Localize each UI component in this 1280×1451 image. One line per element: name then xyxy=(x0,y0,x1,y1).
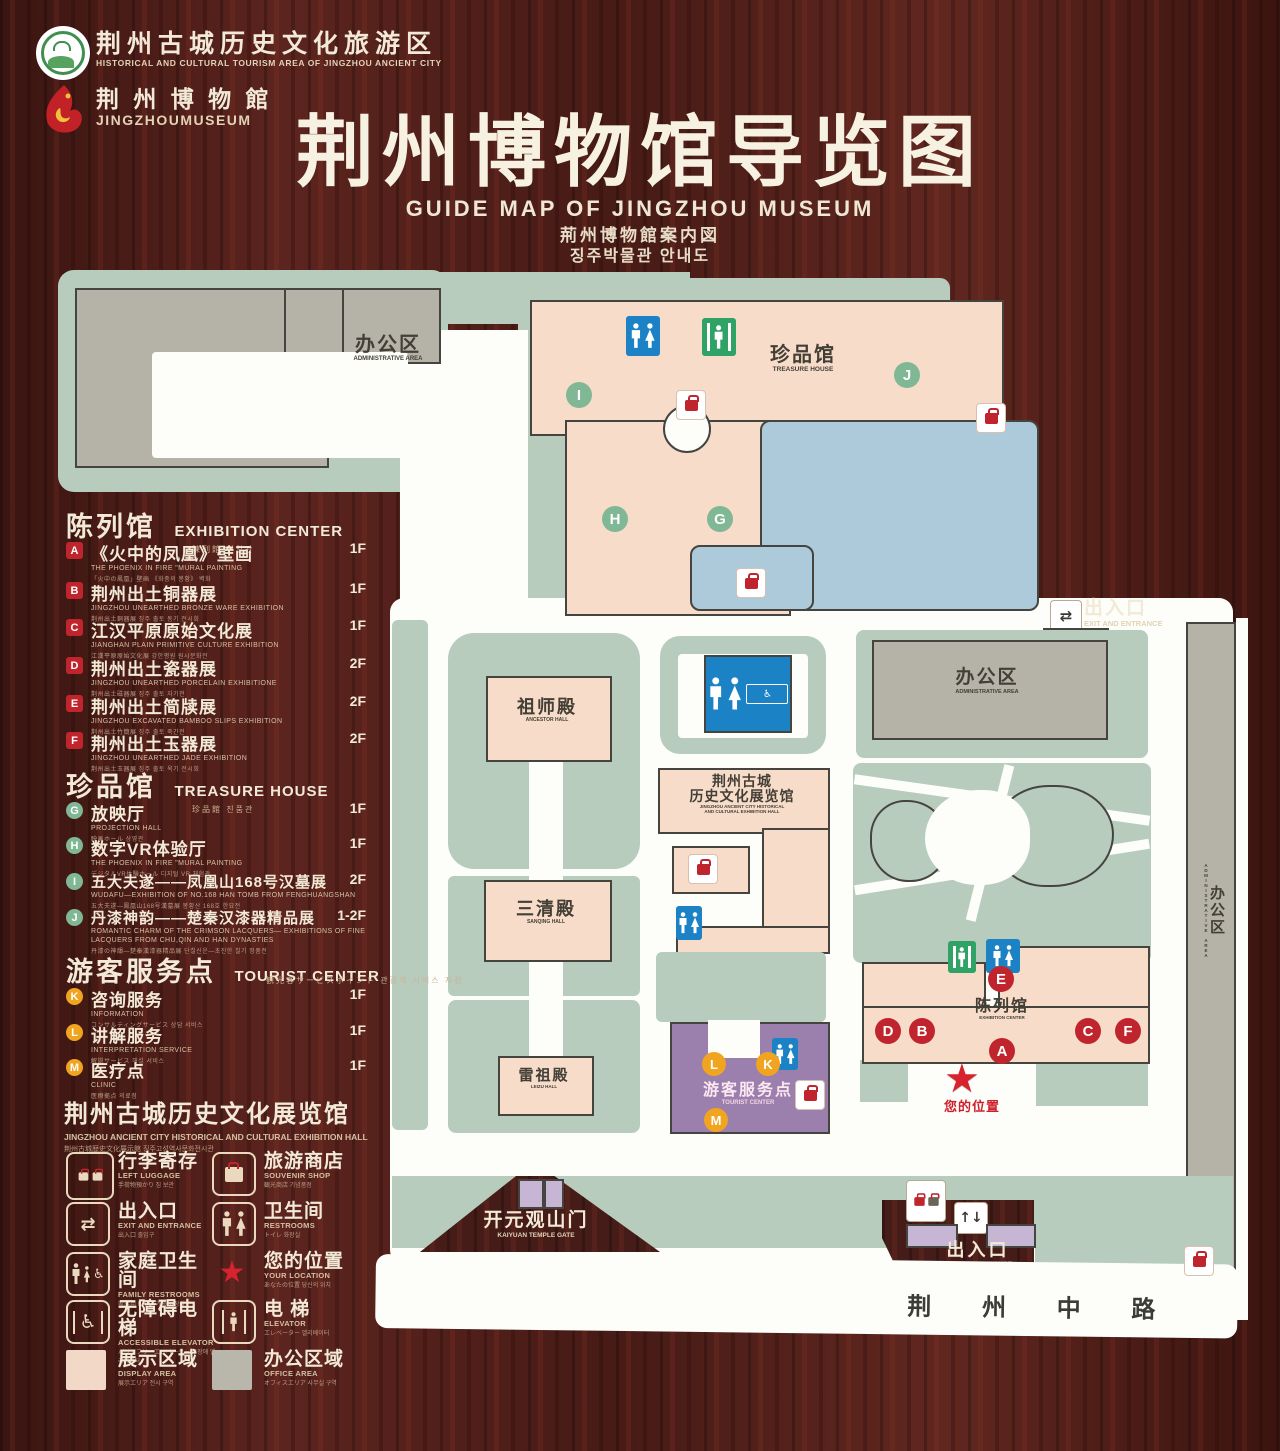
marker-K: K xyxy=(756,1052,780,1076)
office-strip-label: 办公区 ADMINISTRATIVE AREA xyxy=(1194,850,1224,970)
treasure-house-label: 珍品馆 TREASURE HOUSE xyxy=(748,344,858,373)
family-restroom-building: ♿ xyxy=(704,655,792,733)
your-location-label: 您的位置 xyxy=(922,1096,1022,1115)
road-label: 荆 州 中 路 xyxy=(375,1280,1177,1325)
exhibition-center-green-east xyxy=(1036,1060,1148,1106)
legend-item-J: J丹漆神韵——楚秦汉漆器精品展1-2F ROMANTIC CHARM OF TH… xyxy=(66,907,366,955)
gate-pillar-west xyxy=(518,1179,544,1209)
marker-J: J xyxy=(894,362,920,388)
admin-courtyard xyxy=(152,352,408,458)
marker-G: G xyxy=(707,506,733,532)
legend-item-D: D荆州出土瓷器展2F JINGZHOU UNEARTHED PORCELAIN … xyxy=(66,655,366,698)
exit-entrance-icon: ⇄ xyxy=(66,1202,110,1246)
page-title-zh: 荆州博物馆导览图 xyxy=(296,108,984,196)
page-title-en: GUIDE MAP OF JINGZHOU MUSEUM xyxy=(240,196,1040,221)
garden-pond-plaza xyxy=(925,790,1030,885)
marker-H: H xyxy=(602,506,628,532)
legend-symbol-left-luggage: 行李寄存LEFT LUGGAGE手荷物預かり 짐 보관 xyxy=(66,1152,216,1189)
family-restroom-subicon: ♿ xyxy=(746,684,788,704)
legend-symbol-your-location: ★ 您的位置YOUR LOCATIONあなたの位置 당신의 위치 xyxy=(212,1252,362,1289)
display-area-swatch xyxy=(66,1350,106,1390)
marker-E: E xyxy=(988,966,1014,992)
legend-symbol-restrooms: 卫生间RESTROOMSトイレ 화장실 xyxy=(212,1202,362,1239)
gate-pillar-east xyxy=(544,1179,564,1209)
museum-phoenix-logo xyxy=(40,84,84,136)
sanqing-hall-label: 三清殿 SANQING HALL xyxy=(484,900,608,925)
elevator-icon-exhibition xyxy=(948,941,976,973)
left-luggage-icon xyxy=(66,1152,114,1200)
east-path xyxy=(1236,618,1248,1320)
ancestor-hall-label: 祖师殿 ANCESTOR HALL xyxy=(486,698,608,723)
your-location-icon: ★ xyxy=(212,1252,252,1292)
legend-symbol-elevator: 电 梯ELEVATORエレベーター 엘리베이터 xyxy=(212,1300,362,1337)
marker-D: D xyxy=(875,1018,901,1044)
accessible-elevator-icon: ♿ xyxy=(66,1300,110,1344)
marker-B: B xyxy=(909,1018,935,1044)
left-luggage-icon-southeast xyxy=(1184,1246,1214,1276)
elevator-icon xyxy=(212,1300,256,1344)
left-luggage-icon-treasure-west xyxy=(676,390,706,420)
elevator-arrows-icon-south: ↑↓ xyxy=(954,1202,988,1234)
left-luggage-icon-tourist xyxy=(795,1080,825,1110)
legend-item-C: C江汉平原原始文化展1F JIANGHAN PLAIN PRIMITIVE CU… xyxy=(66,617,366,660)
legend-symbol-exit-entrance: ⇄ 出入口EXIT AND ENTRANCE出入口 출입구 xyxy=(66,1202,216,1239)
leizu-hall-label: 雷祖殿 LEIZU HALL xyxy=(498,1068,590,1089)
legend-section-tourist-center: 游客服务点 TOURIST CENTER 観光客サービスポイント 관광객 서비스… xyxy=(66,950,464,986)
admin-northwest-label: 办公区 ADMINISTRATIVE AREA xyxy=(328,334,448,363)
page-title: 荆州博物馆导览图 xyxy=(240,108,1040,198)
office-area-swatch xyxy=(212,1350,252,1390)
tourism-area-logo xyxy=(36,26,90,80)
left-luggage-icon-treasure-east xyxy=(976,403,1006,433)
west-green-strip xyxy=(392,620,428,1130)
tourist-courtyard xyxy=(656,952,826,1022)
page-title-ja: 荊州博物館案内図 xyxy=(240,226,1040,246)
road: 荆 州 中 路 xyxy=(375,1254,1238,1339)
restrooms-icon xyxy=(212,1202,256,1246)
marker-L: L xyxy=(702,1052,726,1076)
page-title-ko: 징주박물관 안내도 xyxy=(240,248,1040,266)
legend-hall-title: 荆州古城历史文化展览馆 JINGZHOU ANCIENT CITY HISTOR… xyxy=(64,1094,394,1154)
ancient-city-hall-label: 荆州古城 历史文化展览馆 JINGZHOU ANCIENT CITY HISTO… xyxy=(660,774,824,815)
elevator-icon-north xyxy=(702,318,736,356)
legend-symbol-souvenir-shop: 旅游商店SOUVENIR SHOP観光商店 기념품점 xyxy=(212,1152,362,1189)
tourism-area-name-zh: 荆州古城历史文化旅游区 xyxy=(96,30,437,58)
exhibition-center-green-west xyxy=(860,1060,908,1102)
legend-area-office: 办公区域OFFICE AREAオフィスエリア 사무실 구역 xyxy=(212,1350,362,1387)
legend-item-A: A《火中的凤凰》壁画1F THE PHOENIX IN FIRE "MURAL … xyxy=(66,540,366,583)
legend-area-display: 展示区域DISPLAY AREA展示エリア 전시 구역 xyxy=(66,1350,216,1387)
family-restrooms-icon: ♿ xyxy=(66,1252,110,1296)
restroom-icon-north xyxy=(626,316,660,356)
map-path-corridor xyxy=(400,330,528,610)
tourism-area-name-en: HISTORICAL AND CULTURAL TOURISM AREA OF … xyxy=(96,59,442,69)
admin-east-label: 办公区 ADMINISTRATIVE AREA xyxy=(912,668,1062,695)
marker-M: M xyxy=(704,1108,728,1132)
marker-C: C xyxy=(1075,1018,1101,1044)
legend-item-I: I五大夫遂——凤凰山168号汉墓展2F WUDAFU—EXHIBITION OF… xyxy=(66,871,366,910)
gate-label: 开元观山门 KAIYUAN TEMPLE GATE xyxy=(456,1210,616,1239)
marker-I: I xyxy=(566,382,592,408)
exhibition-center-label: 陈列馆 EXHIBITION CENTER xyxy=(950,998,1054,1021)
guide-map-board: 荆州古城历史文化旅游区 HISTORICAL AND CULTURAL TOUR… xyxy=(0,0,1280,1451)
marker-A: A xyxy=(989,1038,1015,1064)
left-luggage-icon-south xyxy=(906,1180,946,1222)
left-luggage-icon-treasure-south xyxy=(736,568,766,598)
left-luggage-icon-ancient-city-hall xyxy=(688,854,718,884)
tourism-area-name: 荆州古城历史文化旅游区 HISTORICAL AND CULTURAL TOUR… xyxy=(96,30,442,69)
marker-F: F xyxy=(1115,1018,1141,1044)
restroom-icon-ancient-city-hall xyxy=(676,906,702,940)
souvenir-shop-icon xyxy=(212,1152,256,1196)
